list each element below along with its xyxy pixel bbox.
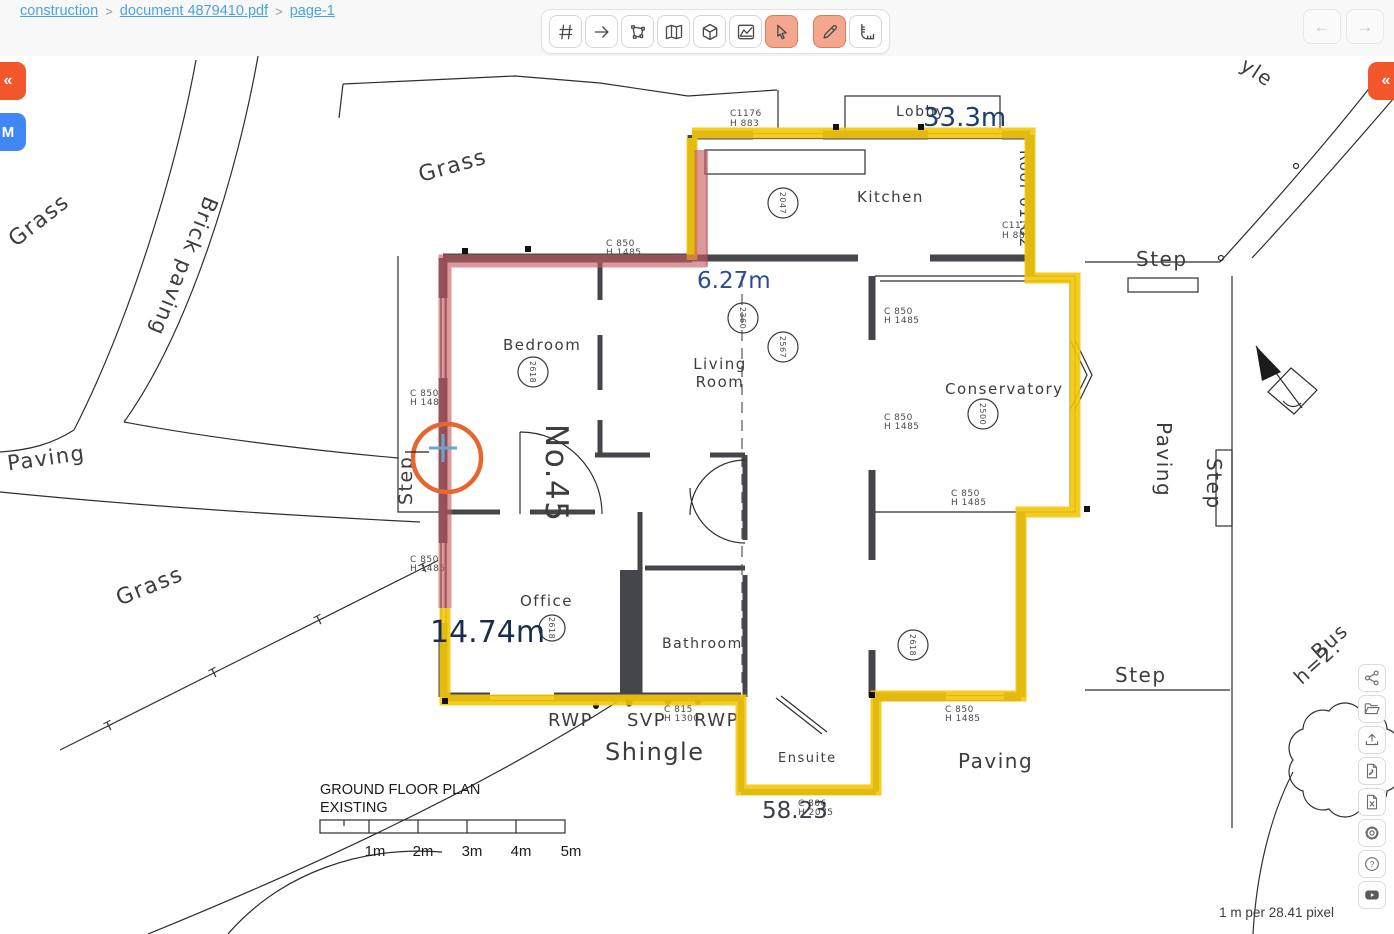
- step-label: Step: [1202, 458, 1226, 510]
- polygon-select-icon: [628, 22, 648, 42]
- svg-text:2618: 2618: [547, 617, 556, 639]
- room-label-conservatory: Conservatory: [945, 380, 1064, 398]
- svg-text:T: T: [101, 718, 117, 736]
- export-excel-button[interactable]: [1358, 788, 1386, 816]
- top-toolbar: [541, 9, 890, 54]
- svg-text:4m: 4m: [511, 843, 532, 860]
- nav-back-button[interactable]: ←: [1303, 9, 1341, 44]
- room-label-bathroom: Bathroom: [662, 636, 743, 652]
- room-label-bedroom: Bedroom: [503, 336, 581, 354]
- chevron-double-left-icon: «: [1382, 72, 1391, 90]
- pencil-tool-button[interactable]: [813, 15, 846, 48]
- paving-label: Paving: [958, 749, 1033, 773]
- right-toolbar: ?: [1358, 664, 1386, 909]
- room-label-living-2: Room: [696, 373, 745, 391]
- measurement-segment[interactable]: 6.27m: [697, 268, 771, 294]
- paving-label: Paving: [1152, 422, 1176, 497]
- youtube-icon: [1363, 886, 1381, 904]
- ruler-icon: [856, 22, 876, 42]
- hash-icon: [556, 22, 576, 42]
- svg-text:2500: 2500: [978, 403, 987, 425]
- brick-paving-label: Brick paving: [145, 193, 223, 340]
- left-panel-collapse-button[interactable]: «: [0, 62, 26, 100]
- svg-text:H 1485: H 1485: [951, 498, 987, 508]
- cube-tool-button[interactable]: [693, 15, 726, 48]
- share-button[interactable]: [1358, 664, 1386, 692]
- north-arrow-icon: [1256, 346, 1317, 414]
- svg-text:2567: 2567: [778, 336, 787, 358]
- page-nav: ← →: [1303, 9, 1384, 44]
- room-label-ensuite: Ensuite: [778, 751, 837, 766]
- chevron-double-left-icon: «: [4, 72, 13, 90]
- measurement-bottom[interactable]: 58.23: [762, 798, 828, 824]
- plan-subtitle: EXISTING: [320, 800, 388, 816]
- left-panel-m-button[interactable]: M: [0, 113, 26, 151]
- svg-text:C1176: C1176: [730, 109, 762, 119]
- svg-text:1m: 1m: [365, 843, 386, 860]
- excel-file-icon: [1363, 793, 1381, 811]
- step-label: Step: [1115, 663, 1167, 687]
- svg-text:2618: 2618: [908, 634, 917, 656]
- title-block: GROUND FLOOR PLAN EXISTING 1m 2m 3m 4m 5…: [320, 782, 581, 860]
- measurement-total[interactable]: 33.3m: [923, 103, 1006, 133]
- open-folder-icon: [1363, 700, 1381, 718]
- svg-text:2m: 2m: [413, 843, 434, 860]
- grass-label: Grass: [113, 562, 187, 611]
- svg-text:H 1485: H 1485: [945, 714, 981, 724]
- arrow-tool-button[interactable]: [585, 15, 618, 48]
- area-chart-icon: [736, 22, 756, 42]
- partial-word-label: yle: [1236, 53, 1278, 92]
- pencil-icon: [820, 22, 840, 42]
- svp-label: SVP: [627, 710, 666, 731]
- cursor-icon: [772, 22, 792, 42]
- map-icon: [664, 22, 684, 42]
- room-label-living-1: Living: [693, 355, 747, 373]
- grass-label: Grass: [4, 189, 75, 252]
- measurement-left[interactable]: 14.74m: [430, 615, 545, 650]
- breadcrumb: construction > document 4879410.pdf > pa…: [20, 3, 335, 19]
- paving-label: Paving: [6, 441, 87, 476]
- upload-button[interactable]: [1358, 726, 1386, 754]
- breadcrumb-link-page[interactable]: page-1: [290, 3, 335, 19]
- breadcrumb-separator: >: [105, 4, 113, 19]
- upload-icon: [1363, 731, 1381, 749]
- share-icon: [1363, 669, 1381, 687]
- settings-button[interactable]: [1358, 819, 1386, 847]
- building-walls: [438, 96, 1092, 792]
- breadcrumb-separator: >: [275, 4, 283, 19]
- ruler-tool-button[interactable]: [849, 15, 882, 48]
- help-icon: ?: [1363, 855, 1381, 873]
- svg-text:5m: 5m: [561, 843, 582, 860]
- room-label-office: Office: [520, 592, 573, 610]
- export-pdf-button[interactable]: [1358, 757, 1386, 785]
- svg-text:H 1300: H 1300: [664, 714, 700, 724]
- help-button[interactable]: ?: [1358, 850, 1386, 878]
- grass-label: Grass: [416, 145, 490, 188]
- cursor-tool-button[interactable]: [765, 15, 798, 48]
- grid-tool-button[interactable]: [549, 15, 582, 48]
- header-bar: construction > document 4879410.pdf > pa…: [0, 0, 1394, 56]
- pdf-file-icon: [1363, 762, 1381, 780]
- svg-text:T: T: [206, 665, 222, 683]
- svg-text:T: T: [311, 612, 327, 630]
- cube-icon: [700, 22, 720, 42]
- scale-readout: 1 m per 28.41 pixel: [1219, 905, 1334, 920]
- svg-text:2047: 2047: [778, 192, 787, 214]
- polygon-select-tool-button[interactable]: [621, 15, 654, 48]
- nav-forward-button[interactable]: →: [1346, 9, 1384, 44]
- room-label-kitchen: Kitchen: [857, 188, 924, 206]
- open-folder-button[interactable]: [1358, 695, 1386, 723]
- map-tool-button[interactable]: [657, 15, 690, 48]
- rwp-label: RWP: [548, 710, 593, 731]
- area-chart-tool-button[interactable]: [729, 15, 762, 48]
- step-label: Step: [1136, 247, 1188, 271]
- floorplan-canvas[interactable]: Grass Grass Grass Brick paving Paving Pa…: [0, 0, 1394, 934]
- measure-path-red[interactable]: [445, 150, 701, 608]
- youtube-button[interactable]: [1358, 881, 1386, 909]
- measure-path-red-edge: [445, 150, 707, 608]
- svg-text:?: ?: [1370, 860, 1375, 869]
- m-panel-label: M: [2, 124, 15, 141]
- plan-labels: Grass Grass Grass Brick paving Paving Pa…: [4, 53, 1353, 860]
- svg-text:2618: 2618: [528, 361, 537, 383]
- breadcrumb-link-project[interactable]: construction: [20, 3, 98, 19]
- breadcrumb-link-document[interactable]: document 4879410.pdf: [120, 3, 268, 19]
- svg-text:2360: 2360: [738, 307, 747, 329]
- rwp-label: RWP: [694, 710, 739, 731]
- svg-text:H 1485: H 1485: [884, 316, 920, 326]
- svg-text:3m: 3m: [462, 843, 483, 860]
- plan-title: GROUND FLOOR PLAN: [320, 782, 480, 798]
- svg-text:H 1485: H 1485: [884, 422, 920, 432]
- gear-icon: [1363, 824, 1381, 842]
- arrow-right-icon: [592, 22, 612, 42]
- shingle-label: Shingle: [605, 738, 705, 766]
- right-panel-collapse-button[interactable]: «: [1368, 62, 1394, 100]
- house-number-label: No.45: [538, 424, 574, 522]
